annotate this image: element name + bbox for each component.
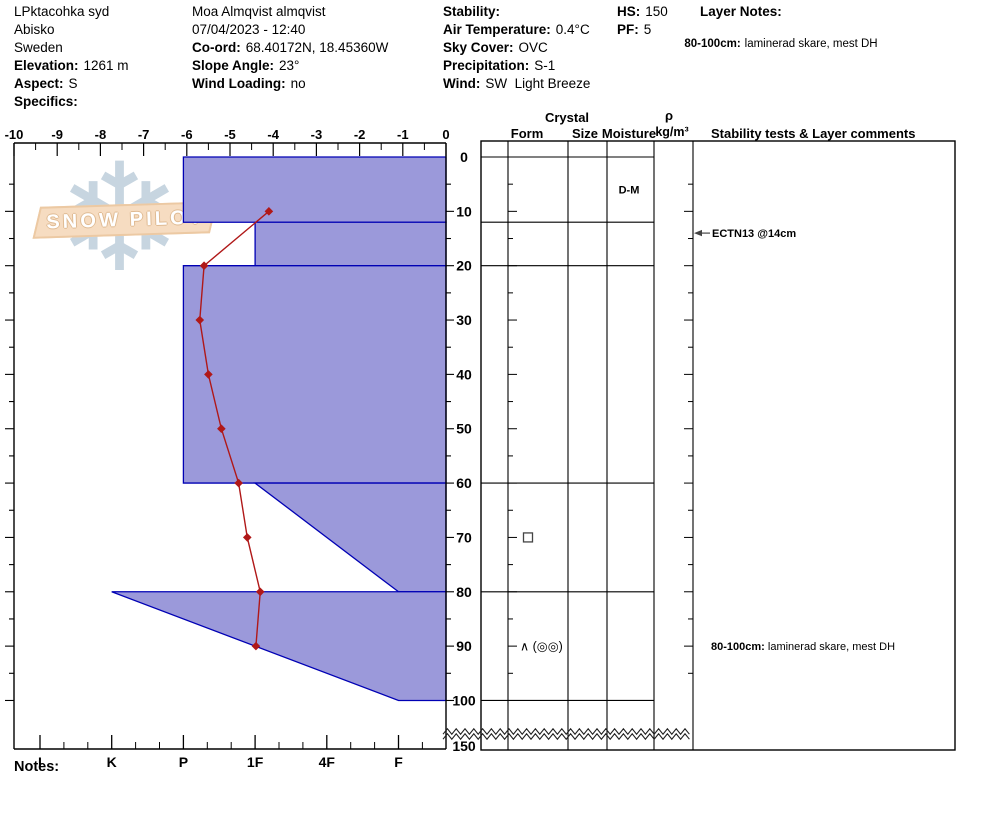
aspect-row: Aspect:S	[14, 75, 129, 93]
totals-block: HS:150 PF:5	[617, 3, 668, 39]
location-block: LPktacohka syd Abisko Sweden Elevation:1…	[14, 3, 129, 111]
elevation-label: Elevation:	[14, 58, 79, 73]
air-temp-value: 0.4°C	[556, 22, 590, 37]
crystal-header: Crystal	[545, 110, 589, 125]
stability-comments-header: Stability tests & Layer comments	[711, 126, 915, 141]
depth-label: 30	[456, 312, 472, 328]
layer-note-text: laminerad skare, mest DH	[745, 38, 878, 50]
sky-cover-row: Sky Cover:OVC	[443, 39, 590, 57]
temperature-point	[243, 533, 252, 542]
slope-angle-row: Slope Angle:23°	[192, 57, 388, 75]
temp-tick-label: -8	[95, 127, 107, 142]
coord-row: Co-ord:68.40172N, 18.45360W	[192, 39, 388, 57]
hs-label: HS:	[617, 4, 640, 19]
notes-label: Notes:	[14, 759, 59, 775]
depth-label: 80	[456, 584, 472, 600]
density-header: ρ	[665, 108, 673, 123]
snow-profile-chart: -10-9-8-7-6-5-4-3-2-10IKP1F4FF0102030405…	[0, 0, 994, 840]
temp-tick-label: -9	[51, 127, 63, 142]
aspect-label: Aspect:	[14, 76, 64, 91]
slope-angle-value: 23°	[279, 58, 299, 73]
form-header: Form	[511, 126, 544, 141]
elevation-row: Elevation:1261 m	[14, 57, 129, 75]
temp-tick-label: 0	[442, 127, 449, 142]
temp-tick-label: -4	[267, 127, 279, 142]
coord-label: Co-ord:	[192, 40, 241, 55]
depth-label: 40	[456, 366, 472, 382]
location-country: Sweden	[14, 39, 129, 57]
air-temp-row: Air Temperature:0.4°C	[443, 21, 590, 39]
moisture-header: Moisture	[602, 126, 656, 141]
snow-layer-60-80	[255, 483, 446, 592]
temp-tick-label: -6	[181, 127, 193, 142]
wind-value: SW Light Breeze	[485, 76, 590, 91]
snow-layer-12-20	[255, 222, 446, 265]
depth-label: 60	[456, 475, 472, 491]
stability-row: Stability:	[443, 3, 590, 21]
snow-layer-20-60	[183, 266, 446, 483]
hardness-label: 4F	[319, 754, 336, 770]
wind-loading-row: Wind Loading:no	[192, 75, 388, 93]
hs-row: HS:150	[617, 3, 668, 21]
hardness-label: K	[107, 754, 117, 770]
location-name: LPktacohka syd	[14, 3, 129, 21]
conditions-block: Stability: Air Temperature:0.4°C Sky Cov…	[443, 3, 590, 93]
depth-label: 20	[456, 258, 472, 274]
sky-cover-label: Sky Cover:	[443, 40, 514, 55]
density-units: kg/m³	[655, 125, 688, 139]
depth-label: 90	[456, 638, 472, 654]
depth-label: 150	[452, 738, 476, 754]
specifics-row: Specifics:	[14, 93, 129, 111]
precipitation-row: Precipitation:S-1	[443, 57, 590, 75]
layer-notes-block: Layer Notes:	[700, 3, 782, 21]
wind-row: Wind:SW Light Breeze	[443, 75, 590, 93]
snow-layer-80-100	[112, 592, 446, 701]
specifics-label: Specifics:	[14, 94, 78, 109]
slope-angle-label: Slope Angle:	[192, 58, 274, 73]
test-arrow-head	[694, 230, 702, 236]
layer-note-range: 80-100cm:	[684, 38, 740, 50]
depth-label: 70	[456, 529, 472, 545]
hs-value: 150	[645, 4, 668, 19]
layer-note: 80-100cm:laminerad skare, mest DH	[678, 23, 878, 51]
hardness-label: P	[179, 754, 188, 770]
depth-label: 10	[456, 203, 472, 219]
observer-block: Moa Almqvist almqvist 07/04/2023 - 12:40…	[192, 3, 388, 93]
depth-label: 0	[460, 149, 468, 165]
moisture-value: D-M	[619, 185, 640, 197]
wind-loading-label: Wind Loading:	[192, 76, 286, 91]
wind-label: Wind:	[443, 76, 480, 91]
size-header: Size	[572, 126, 598, 141]
coord-value: 68.40172N, 18.45360W	[246, 40, 389, 55]
pf-row: PF:5	[617, 21, 668, 39]
hardness-label: F	[394, 754, 403, 770]
elevation-value: 1261 m	[84, 58, 129, 73]
stability-label: Stability:	[443, 4, 500, 19]
precipitation-label: Precipitation:	[443, 58, 529, 73]
observer-name: Moa Almqvist almqvist	[192, 3, 388, 21]
precipitation-value: S-1	[534, 58, 555, 73]
hardness-label: 1F	[247, 754, 264, 770]
temp-tick-label: -3	[311, 127, 323, 142]
scale-break-zigzag	[443, 729, 689, 734]
grain-form-symbol-faceted	[524, 533, 533, 542]
location-region: Abisko	[14, 21, 129, 39]
pf-label: PF:	[617, 22, 639, 37]
depth-label: 50	[456, 421, 472, 437]
temp-tick-label: -10	[5, 127, 24, 142]
layer-comment: 80-100cm: laminerad skare, mest DH	[711, 641, 895, 653]
temp-tick-label: -1	[397, 127, 409, 142]
stability-test-label: ECTN13 @14cm	[712, 228, 796, 240]
wind-loading-value: no	[291, 76, 306, 91]
temp-tick-label: -5	[224, 127, 236, 142]
grain-form-symbol: ∧ (◎◎)	[520, 640, 563, 654]
layer-notes-label: Layer Notes:	[700, 3, 782, 21]
snow-layer-0-12	[183, 157, 446, 222]
observation-datetime: 07/04/2023 - 12:40	[192, 21, 388, 39]
aspect-value: S	[69, 76, 78, 91]
temp-tick-label: -2	[354, 127, 366, 142]
sky-cover-value: OVC	[519, 40, 548, 55]
pf-value: 5	[644, 22, 652, 37]
depth-label: 100	[452, 692, 476, 708]
temp-tick-label: -7	[138, 127, 150, 142]
air-temp-label: Air Temperature:	[443, 22, 551, 37]
